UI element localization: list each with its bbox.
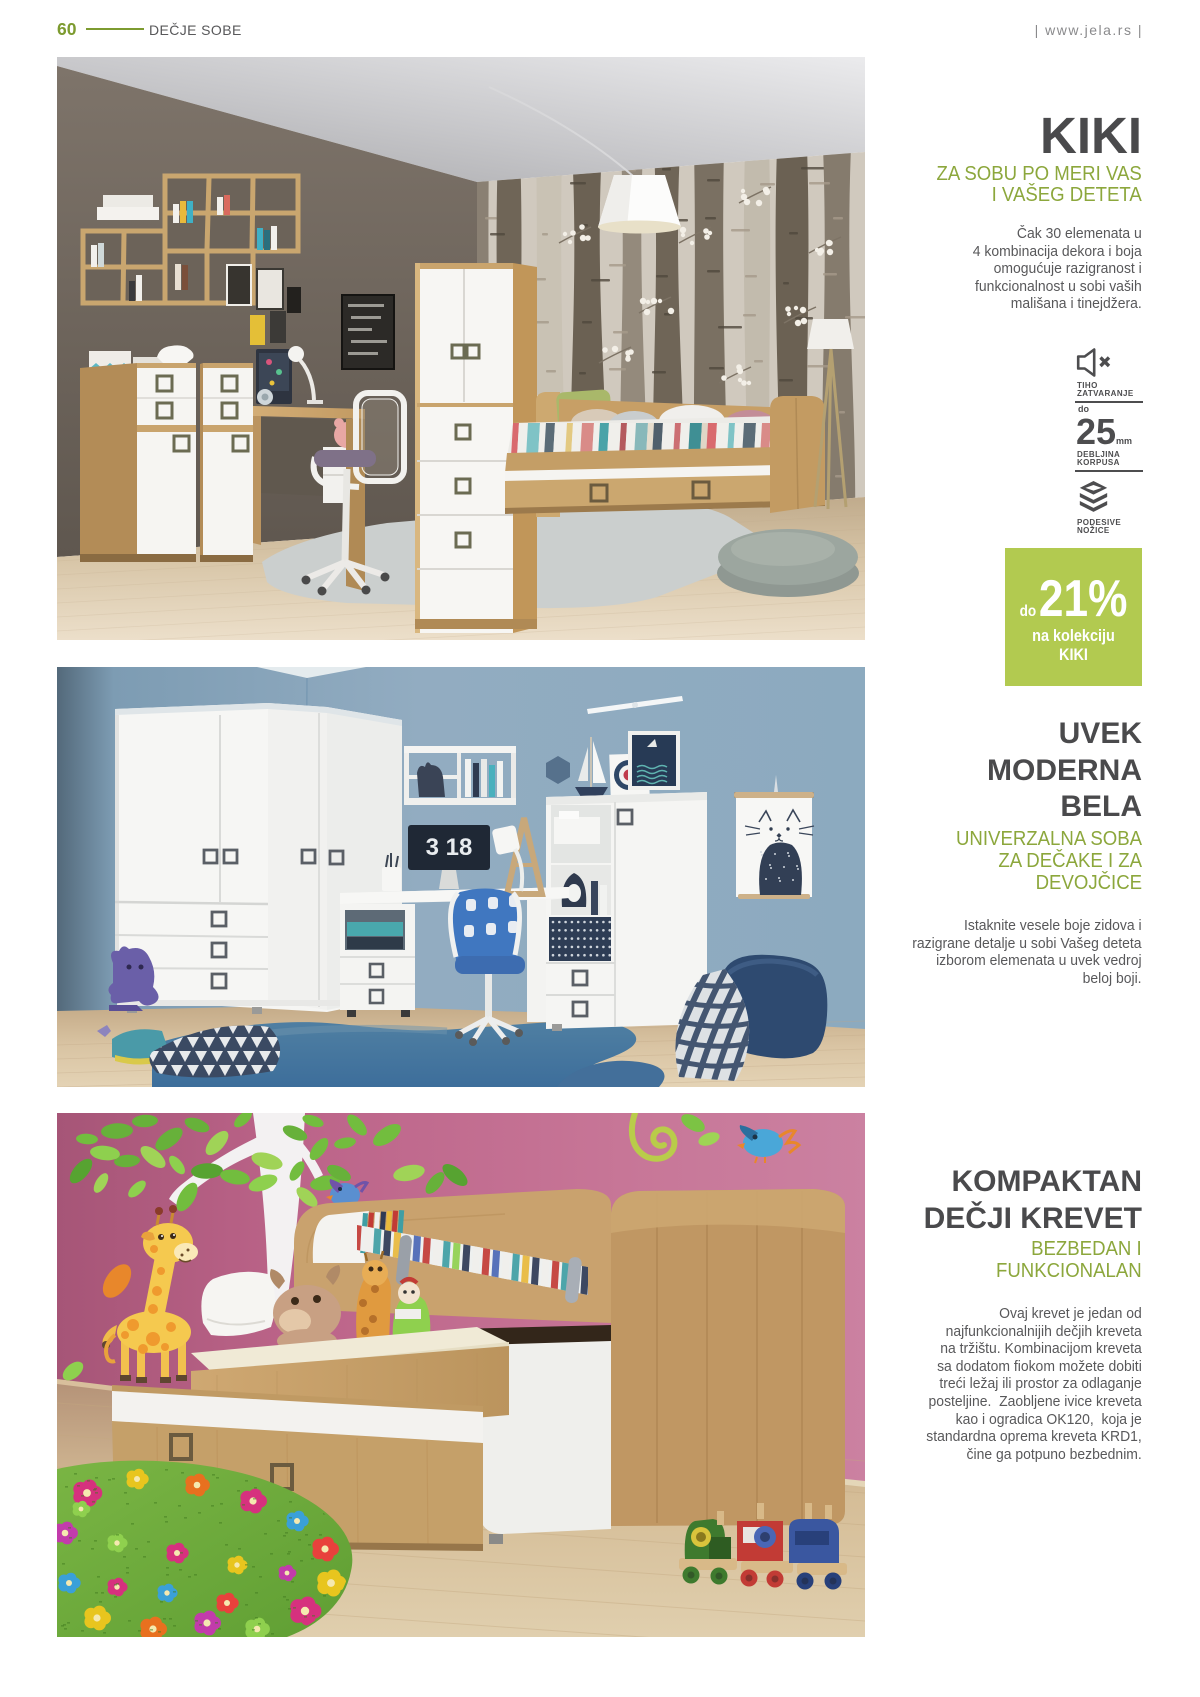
svg-text:3 18: 3 18 (426, 834, 473, 861)
